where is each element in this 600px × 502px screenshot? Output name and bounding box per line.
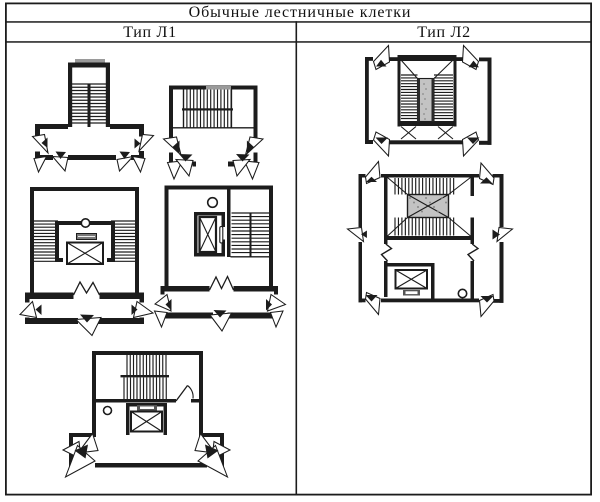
svg-text:Обычные лестничные клетки: Обычные лестничные клетки bbox=[189, 4, 412, 21]
svg-text:Тип Л1: Тип Л1 bbox=[123, 24, 177, 41]
svg-text:Тип Л2: Тип Л2 bbox=[417, 24, 471, 41]
